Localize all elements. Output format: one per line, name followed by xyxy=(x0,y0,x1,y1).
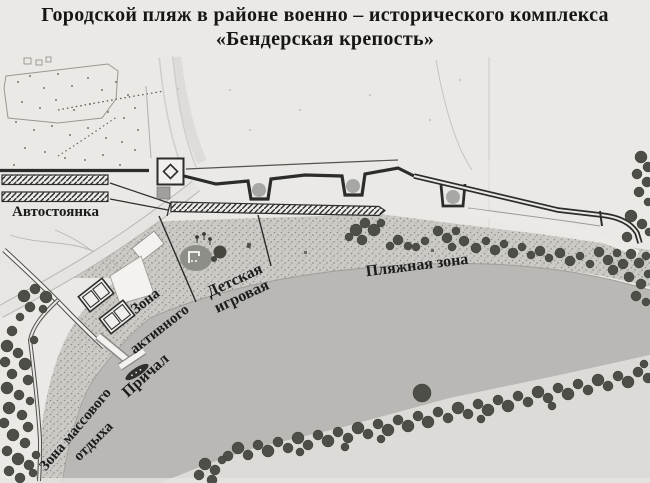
map-title-line2: «Бендерская крепость» xyxy=(0,28,650,51)
parking-hatch-strip xyxy=(2,175,108,185)
beach-map-scan: Городской пляж в районе военно – историч… xyxy=(0,0,650,483)
label-parking: Автостоянка xyxy=(12,204,99,221)
bastion-circle xyxy=(446,190,460,204)
bastion-circle xyxy=(346,179,360,193)
parking-hatch-strip xyxy=(2,192,108,202)
map-title-line1: Городской пляж в районе военно – историч… xyxy=(0,4,650,27)
bastion-circle xyxy=(252,183,266,197)
